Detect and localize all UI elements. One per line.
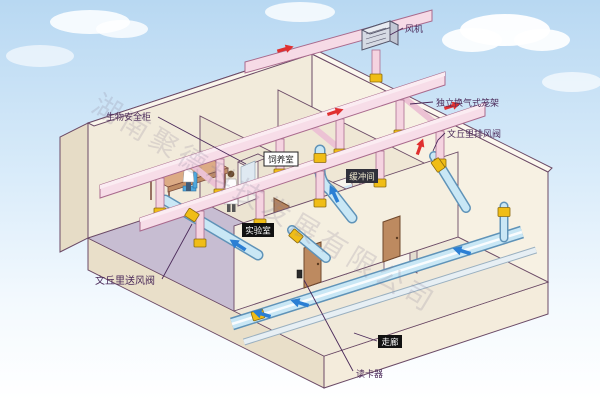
- ventilation-diagram: 湖南聚德科技发展有限公司 饲养室 实验室 缓冲间 走廊 风机 独立换气式笼架 文…: [0, 0, 600, 400]
- biosafety-cabinet-label: 生物安全柜: [106, 111, 151, 123]
- left-wall-cap: [60, 123, 88, 252]
- fan-label: 风机: [405, 23, 423, 35]
- ivc-rack-label: 独立换气式笼架: [436, 97, 499, 109]
- venturi-exhaust-valve-label: 文丘里排风阀: [447, 128, 501, 140]
- door-knob: [396, 237, 398, 239]
- corridor-label: 走廊: [381, 337, 399, 348]
- door-knob: [317, 263, 319, 265]
- laboratory-label: 实验室: [245, 226, 271, 237]
- room-badge-lab: 实验室: [242, 223, 274, 237]
- buffer-room-label: 缓冲间: [349, 172, 375, 183]
- venturi-supply-valve-label: 文丘里送风阀: [95, 274, 155, 287]
- door: [383, 216, 400, 262]
- room-badge-buffer: 缓冲间: [346, 169, 378, 183]
- rearing-room-label: 饲养室: [268, 155, 294, 166]
- card-reader-device: [297, 270, 302, 278]
- card-reader-label: 读卡器: [356, 368, 383, 380]
- room-badge-rearing: 饲养室: [264, 152, 298, 166]
